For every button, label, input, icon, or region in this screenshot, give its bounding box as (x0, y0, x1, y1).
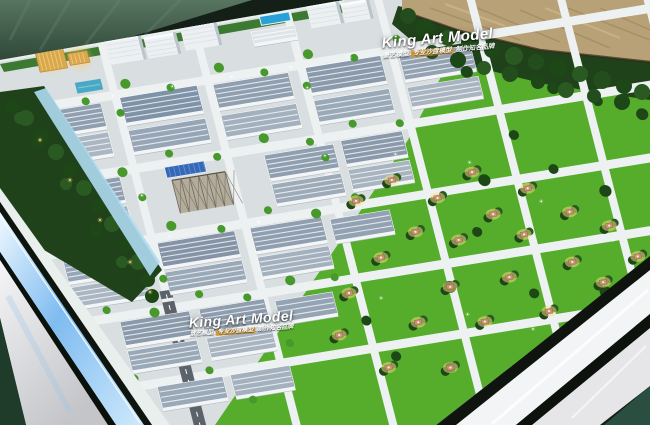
model-photo-stage: King Art Model 景艺模型专业沙盘模型制作知名品牌 King Art… (0, 0, 650, 425)
scale-model-scene (0, 0, 650, 425)
